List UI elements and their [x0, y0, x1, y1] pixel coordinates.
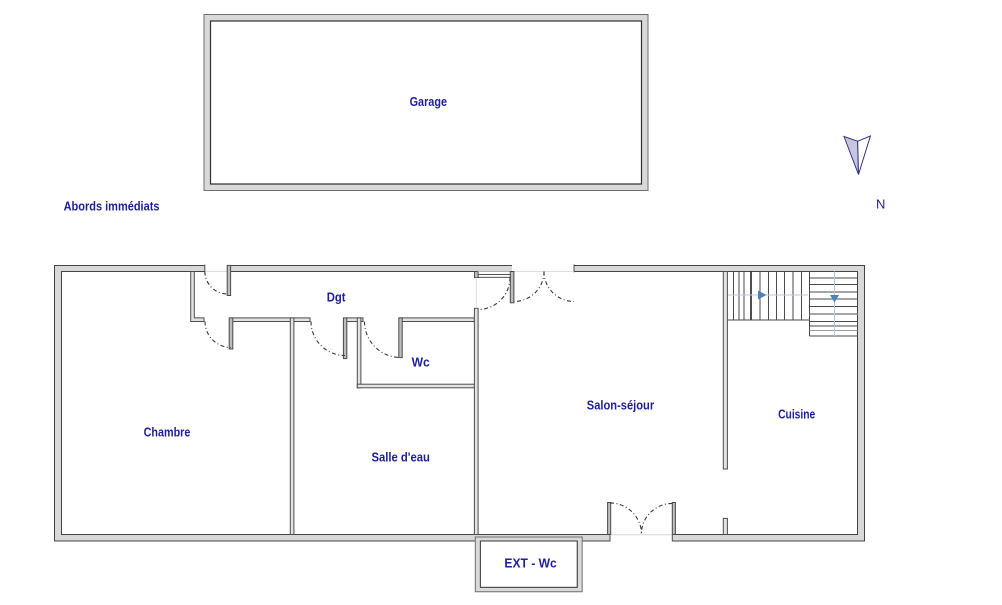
svg-text:Garage: Garage — [410, 94, 447, 109]
svg-text:EXT - Wc: EXT - Wc — [504, 556, 556, 571]
svg-text:Wc: Wc — [412, 355, 430, 370]
svg-text:Salon-séjour: Salon-séjour — [587, 397, 654, 412]
svg-text:Salle d'eau: Salle d'eau — [371, 450, 430, 465]
svg-text:Chambre: Chambre — [144, 425, 191, 440]
svg-text:Dgt: Dgt — [327, 290, 346, 305]
svg-text:N: N — [876, 196, 885, 211]
svg-text:Abords immédiats: Abords immédiats — [64, 199, 160, 214]
svg-text:Cuisine: Cuisine — [778, 406, 815, 421]
